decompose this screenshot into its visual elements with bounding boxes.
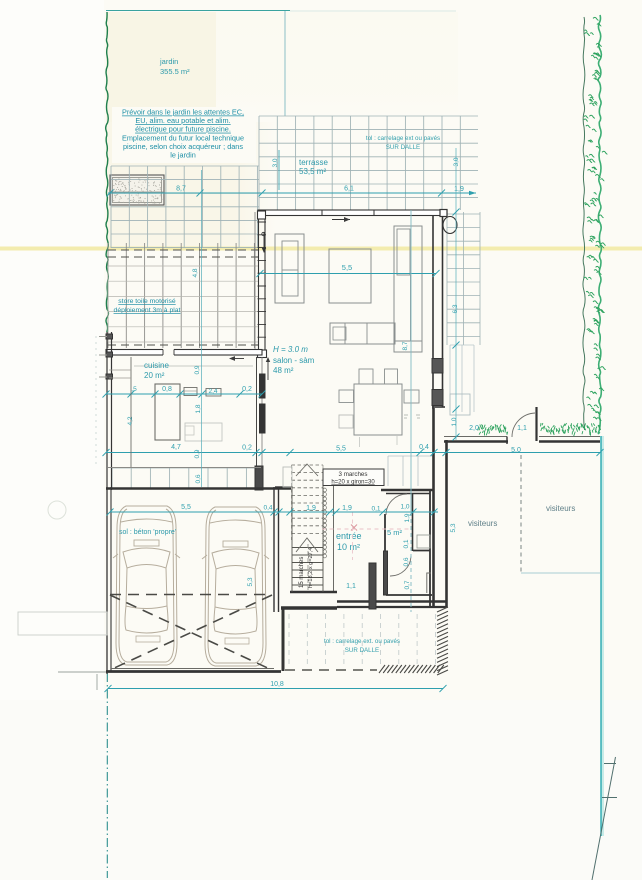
svg-text:20 m²: 20 m² bbox=[144, 371, 165, 380]
svg-text:6,1: 6,1 bbox=[344, 186, 354, 193]
svg-text:tol : carrelage ext ou pavés: tol : carrelage ext ou pavés bbox=[366, 135, 440, 142]
svg-text:0,2: 0,2 bbox=[242, 445, 252, 452]
svg-text:5,5: 5,5 bbox=[336, 446, 346, 453]
svg-text:,5: ,5 bbox=[131, 386, 137, 393]
svg-text:0,4: 0,4 bbox=[263, 505, 272, 512]
svg-text:1,9: 1,9 bbox=[342, 505, 352, 512]
svg-text:1,9: 1,9 bbox=[306, 505, 316, 512]
svg-text:SUR DALLE: SUR DALLE bbox=[345, 647, 379, 654]
svg-text:0,8: 0,8 bbox=[162, 386, 172, 393]
svg-text:1,0: 1,0 bbox=[400, 504, 409, 511]
svg-text:8,7: 8,7 bbox=[176, 186, 186, 193]
svg-text:SUR DALLE: SUR DALLE bbox=[386, 144, 420, 151]
svg-text:0,7: 0,7 bbox=[404, 580, 411, 589]
svg-text:5,3: 5,3 bbox=[247, 577, 254, 586]
svg-text:1,1: 1,1 bbox=[517, 425, 527, 432]
svg-text:3,0: 3,0 bbox=[453, 157, 460, 166]
svg-text:1,9: 1,9 bbox=[454, 186, 464, 193]
svg-text:0,1: 0,1 bbox=[371, 506, 380, 513]
svg-text:0,6: 0,6 bbox=[403, 557, 410, 566]
svg-text:5,0: 5,0 bbox=[511, 447, 521, 454]
svg-text:h=18,2 x g=27,4: h=18,2 x g=27,4 bbox=[308, 548, 314, 588]
svg-text:5,3: 5,3 bbox=[450, 523, 457, 532]
svg-text:4,7: 4,7 bbox=[171, 444, 181, 451]
svg-text:le jardin: le jardin bbox=[170, 151, 196, 160]
svg-text:15 marches: 15 marches bbox=[299, 557, 305, 588]
svg-text:355.5 m²: 355.5 m² bbox=[160, 67, 190, 76]
svg-text:3 marches: 3 marches bbox=[339, 471, 368, 478]
svg-text:5,5: 5,5 bbox=[342, 263, 352, 272]
svg-text:0,4: 0,4 bbox=[419, 444, 429, 451]
svg-text:48 m²: 48 m² bbox=[273, 366, 294, 375]
svg-text:6,3: 6,3 bbox=[452, 304, 459, 313]
svg-text:5,5: 5,5 bbox=[181, 504, 191, 511]
svg-text:salon - sàm: salon - sàm bbox=[273, 356, 315, 365]
svg-text:53,5 m²: 53,5 m² bbox=[299, 167, 326, 176]
svg-text:0,2: 0,2 bbox=[242, 386, 252, 393]
svg-text:visiteurs: visiteurs bbox=[468, 519, 497, 528]
svg-text:0,9: 0,9 bbox=[194, 449, 201, 458]
svg-text:10,8: 10,8 bbox=[270, 681, 284, 688]
svg-text:3,0: 3,0 bbox=[272, 158, 279, 167]
svg-text:h=20 x giron=30: h=20 x giron=30 bbox=[331, 480, 375, 486]
svg-text:store toile motorisé: store toile motorisé bbox=[118, 298, 176, 305]
svg-text:10 m²: 10 m² bbox=[337, 542, 360, 552]
svg-text:terrasse: terrasse bbox=[299, 158, 328, 167]
svg-text:2,4: 2,4 bbox=[208, 388, 217, 395]
svg-text:jardin: jardin bbox=[159, 57, 178, 66]
svg-text:tol : carrelage ext. ou pavés: tol : carrelage ext. ou pavés bbox=[324, 638, 400, 645]
svg-text:entrée: entrée bbox=[336, 531, 362, 541]
svg-text:0,6: 0,6 bbox=[195, 474, 202, 483]
svg-text:1,1: 1,1 bbox=[346, 583, 356, 590]
svg-text:1,9: 1,9 bbox=[404, 513, 411, 522]
svg-text:0,9: 0,9 bbox=[194, 365, 201, 374]
svg-text:cuisine: cuisine bbox=[144, 361, 169, 370]
svg-text:4,8: 4,8 bbox=[192, 268, 199, 277]
svg-text:déploiement 3m à plat: déploiement 3m à plat bbox=[114, 307, 181, 314]
svg-text:2,0: 2,0 bbox=[469, 425, 479, 432]
svg-text:sol : béton 'propre': sol : béton 'propre' bbox=[119, 529, 176, 536]
svg-text:8,7: 8,7 bbox=[402, 341, 409, 350]
svg-text:1,0: 1,0 bbox=[451, 417, 458, 426]
svg-text:visiteurs: visiteurs bbox=[546, 504, 575, 513]
svg-text:H = 3.0 m: H = 3.0 m bbox=[273, 345, 308, 354]
svg-text:1,8: 1,8 bbox=[195, 404, 202, 413]
svg-text:4,2: 4,2 bbox=[127, 416, 134, 425]
svg-text:0,1: 0,1 bbox=[403, 539, 410, 548]
